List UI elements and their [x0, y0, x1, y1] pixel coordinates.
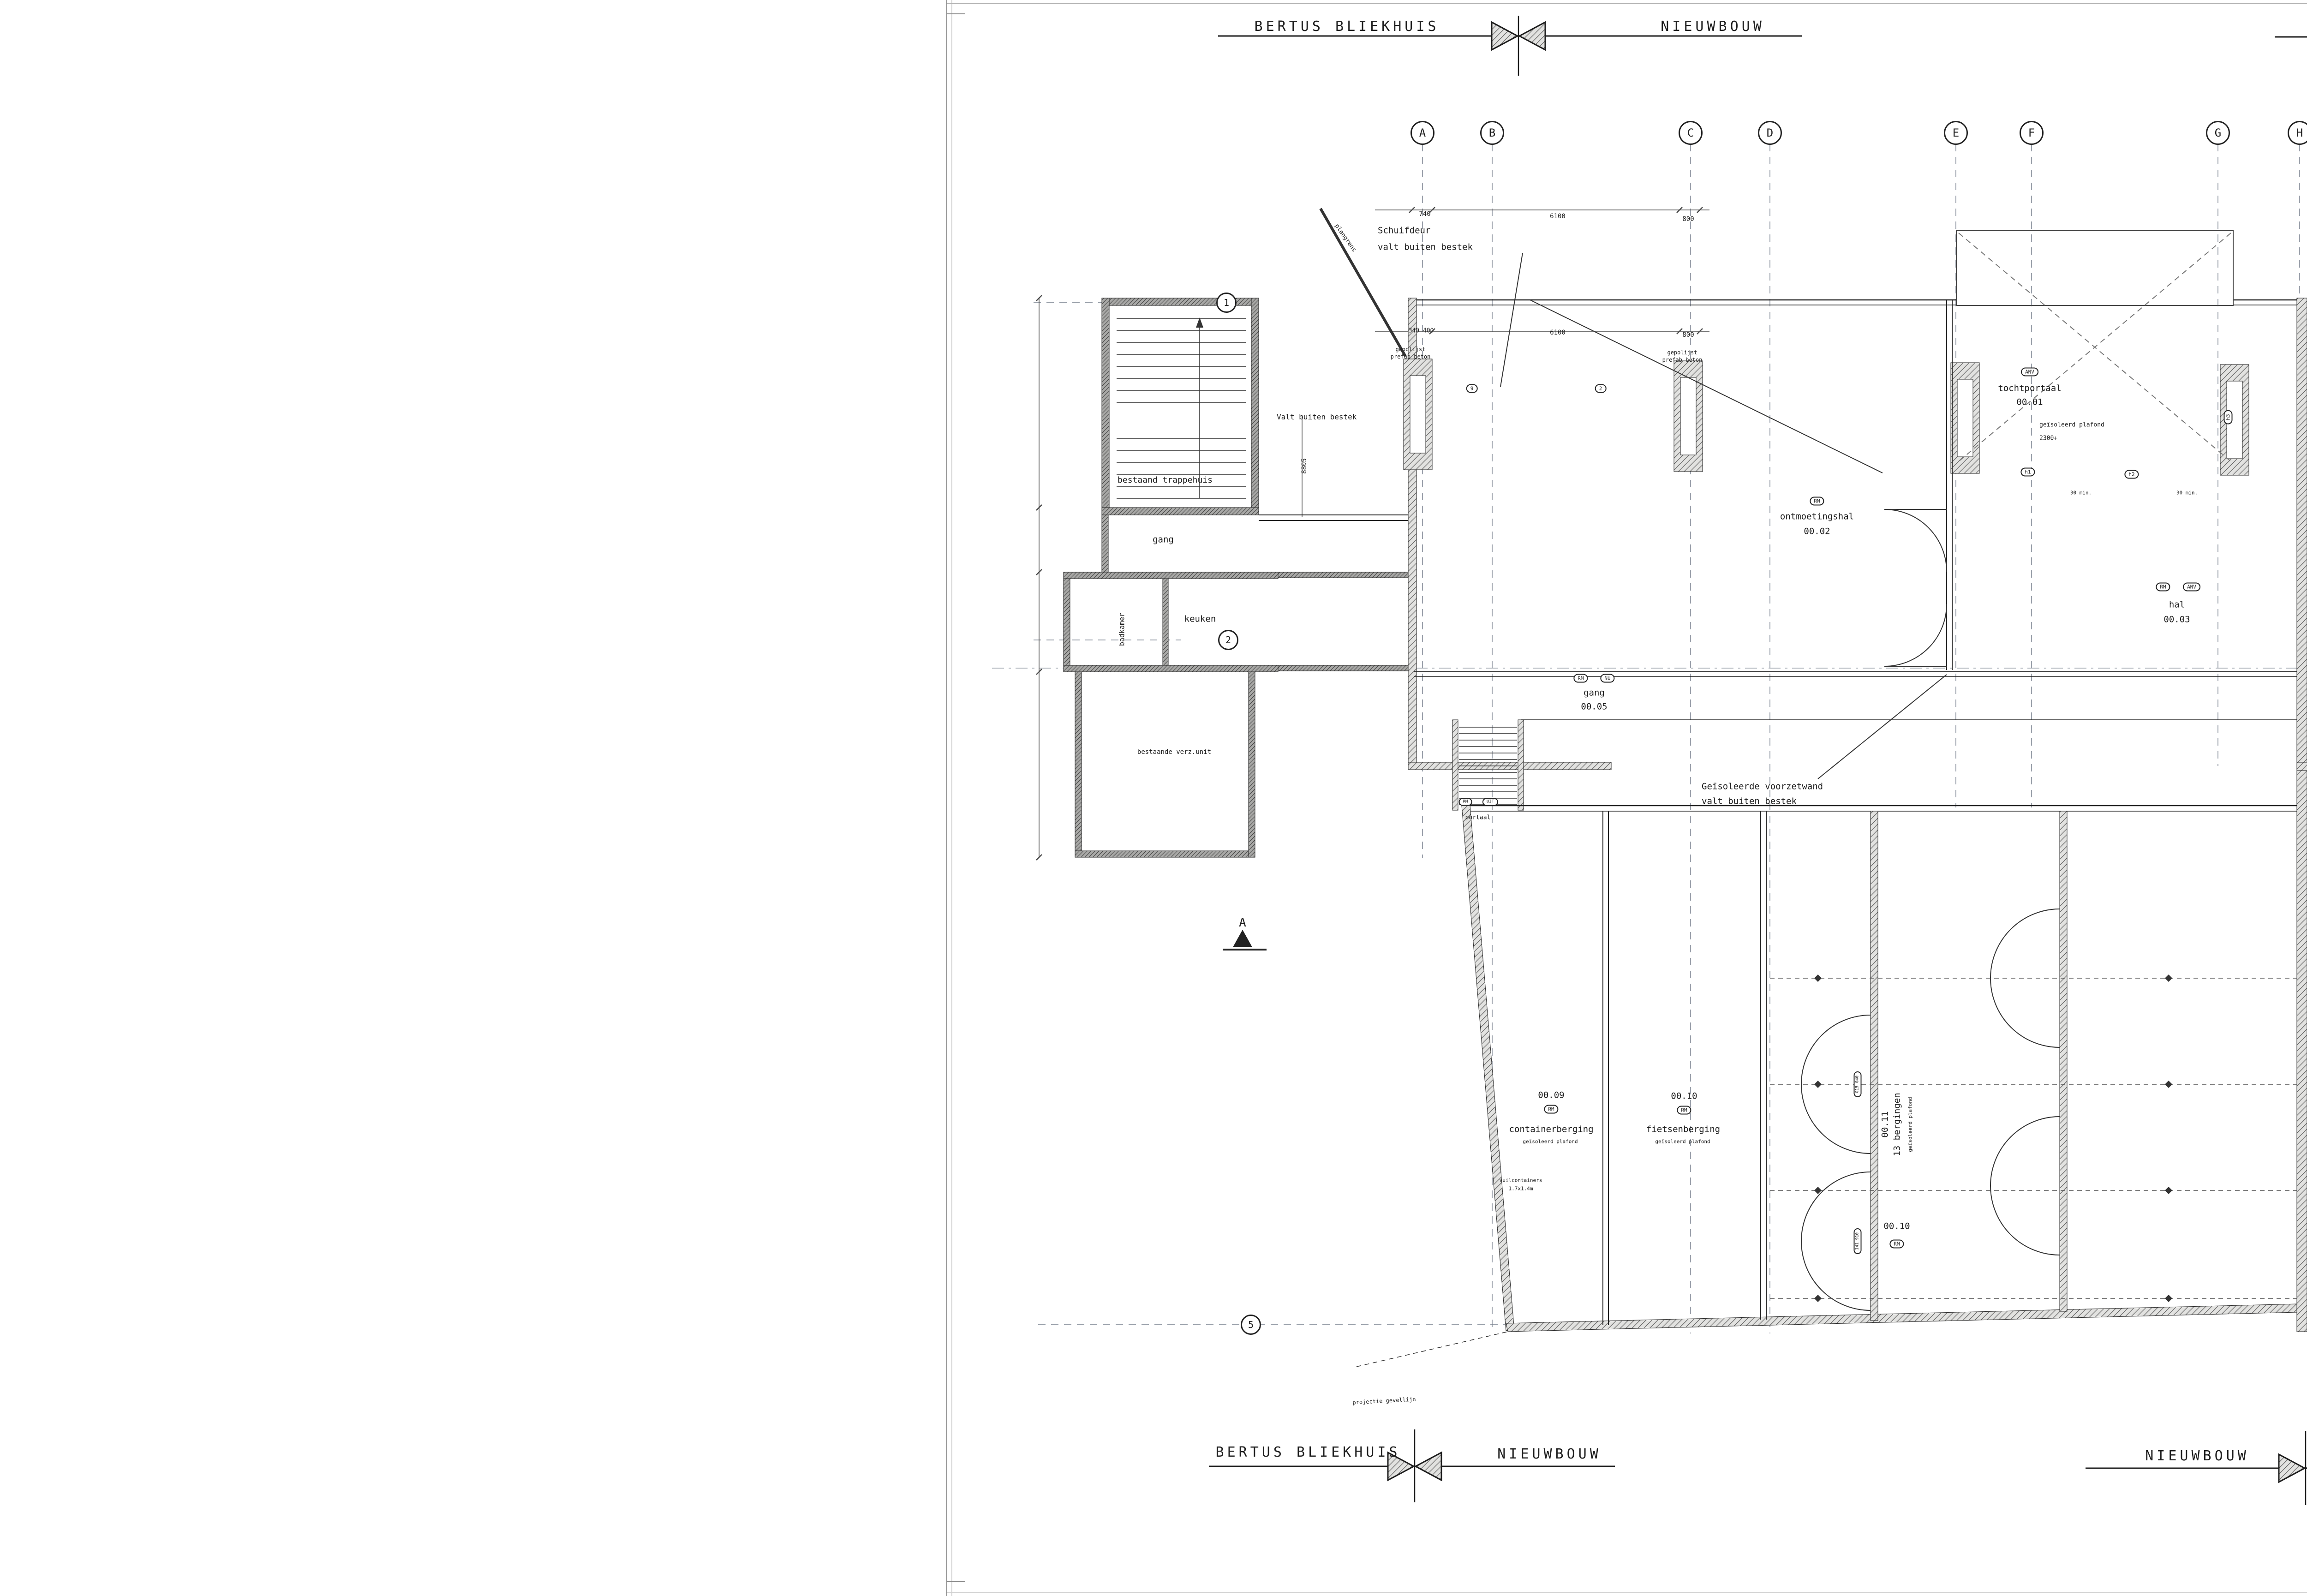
stairs-portal	[1459, 727, 1517, 805]
plan-label: NIEUWBOUW	[1661, 20, 1765, 34]
plan-label: BERTUS BLIEKHUIS	[1255, 20, 1440, 34]
plan-label: gepolijst	[1395, 347, 1425, 352]
plan-label: RM	[1889, 1240, 1904, 1249]
plan-label: BERTUS BLIEKHUIS	[1216, 1446, 1401, 1459]
plan-label: vuilcontainers	[1500, 1178, 1542, 1183]
plan-label: RM	[1459, 798, 1472, 806]
plan-label: 13 bergingen	[1893, 1093, 1902, 1156]
plan-label: NIEUWBOUW	[2145, 1449, 2249, 1463]
plan-label: ANV	[2183, 583, 2200, 592]
plan-label: 015 040	[1854, 1071, 1862, 1097]
plan-label: h3	[2224, 410, 2233, 424]
plan-label: geïsoleerd plafond	[2039, 422, 2104, 428]
plan-label: 6100	[1550, 329, 1566, 336]
grid-column-bubble: B	[1480, 121, 1504, 145]
plan-label: 800	[1682, 332, 1694, 338]
plan-label: 00.03	[2164, 616, 2190, 624]
plan-label: h1	[2020, 468, 2035, 477]
plan-label: RM	[1573, 674, 1588, 683]
plan-label: ANV	[2021, 368, 2038, 377]
plan-label: bestaande verz.unit	[1137, 749, 1211, 755]
plan-label: bestaand trappehuis	[1118, 476, 1213, 484]
plan-label: A	[1239, 917, 1246, 929]
plan-label: 00.09	[1538, 1091, 1564, 1100]
walls-existing-left-block	[1064, 298, 1408, 857]
plan-label: valt buiten bestek	[1378, 243, 1473, 252]
plan-label: NU	[1600, 674, 1614, 683]
plan-label: portaal	[1465, 815, 1491, 821]
plan-label: 8805	[1301, 458, 1308, 474]
plan-label: geïsoleerd plafond	[1908, 1097, 1913, 1152]
plan-label: 800	[1682, 216, 1694, 222]
plan-label: Geïsoleerde voorzetwand	[1702, 783, 1823, 791]
parking-doors	[1801, 909, 2060, 1310]
plan-label: gang	[1584, 689, 1605, 698]
stairs-existing	[1117, 318, 1246, 498]
plan-label: 30 min.	[2176, 490, 2198, 496]
plan-label: 00.10	[1671, 1092, 1697, 1101]
plan-label: fietsenberging	[1646, 1125, 1720, 1134]
drawing-sheet: A B C D E F G H J 1 2 5 BERTUS BLIEKHUIS…	[0, 0, 2307, 1596]
plan-label: NIEUWBOUW	[1497, 1447, 1602, 1461]
stair-arrow	[1196, 317, 1203, 328]
plan-label: RM	[2156, 583, 2170, 592]
grid-row-bubble: 5	[1241, 1315, 1261, 1335]
plan-label: RM	[1544, 1105, 1558, 1114]
plan-label: gang	[1153, 536, 1174, 544]
walls-main-hall	[1404, 298, 2297, 811]
floor-plan-linework	[0, 0, 2307, 1596]
plan-label: 340 400	[1409, 328, 1434, 334]
grid-column-bubble: G	[2206, 121, 2230, 145]
plan-label: geïsoleerd plafond	[1655, 1139, 1710, 1144]
plan-label: keuken	[1184, 615, 1216, 624]
grid-column-bubble: E	[1944, 121, 1968, 145]
plan-label: 2300+	[2039, 436, 2057, 442]
plan-label: badkamer	[1119, 613, 1126, 646]
plan-label: h2	[2124, 470, 2139, 479]
sheet-border	[947, 0, 2307, 1596]
plan-label: geïsoleerd plafond	[1523, 1139, 1578, 1144]
walls-garage	[1462, 806, 2297, 1332]
grid-column-bubble: D	[1758, 121, 1782, 145]
plan-label: 00.05	[1581, 703, 1607, 711]
grid-lines	[992, 144, 2307, 1333]
plan-label: gepolijst	[1667, 350, 1697, 355]
parking-stall-lines	[1770, 974, 2297, 1302]
doors-hall	[1884, 509, 1947, 666]
plan-label: containerberging	[1509, 1125, 1593, 1134]
plan-label: 141 910	[1854, 1228, 1862, 1254]
grid-column-bubble: C	[1679, 121, 1703, 145]
plan-label: valt buiten bestek	[1702, 797, 1797, 806]
grid-column-bubble: A	[1410, 121, 1434, 145]
plan-label: 2	[1595, 384, 1607, 393]
plan-label: Valt buiten bestek	[1277, 413, 1357, 421]
plan-label: 9	[1466, 384, 1478, 393]
plan-label: prefab beton	[1391, 354, 1431, 359]
plan-label: 00.02	[1804, 527, 1830, 536]
plan-label: 6100	[1550, 213, 1566, 220]
grid-column-bubble: F	[2020, 121, 2044, 145]
plan-label: UIT	[1482, 798, 1498, 806]
plan-label: 1.7x1.4m	[1509, 1186, 1533, 1191]
plan-label: 00.11	[1881, 1111, 1890, 1137]
section-cut-markers	[1223, 930, 2307, 950]
plan-label: prefab beton	[1662, 357, 1703, 363]
plan-label: 00.10	[1883, 1222, 1910, 1231]
walls-right-block	[2297, 298, 2307, 1332]
plan-label: hal	[2169, 601, 2185, 610]
plan-label: 00.01	[2016, 398, 2043, 407]
grid-row-bubble: 2	[1218, 630, 1238, 650]
section-markers	[1209, 16, 2307, 1505]
plan-label: tochtportaal	[1998, 384, 2061, 393]
plan-label: ontmoetingshal	[1780, 513, 1854, 521]
plan-label: Schuifdeur	[1378, 227, 1430, 235]
plan-label: 740	[1419, 211, 1430, 217]
plan-label: RM	[1677, 1106, 1691, 1115]
grid-row-bubble: 1	[1216, 293, 1237, 313]
plan-label: 30 min.	[2070, 490, 2092, 496]
plan-label: RM	[1810, 497, 1824, 506]
